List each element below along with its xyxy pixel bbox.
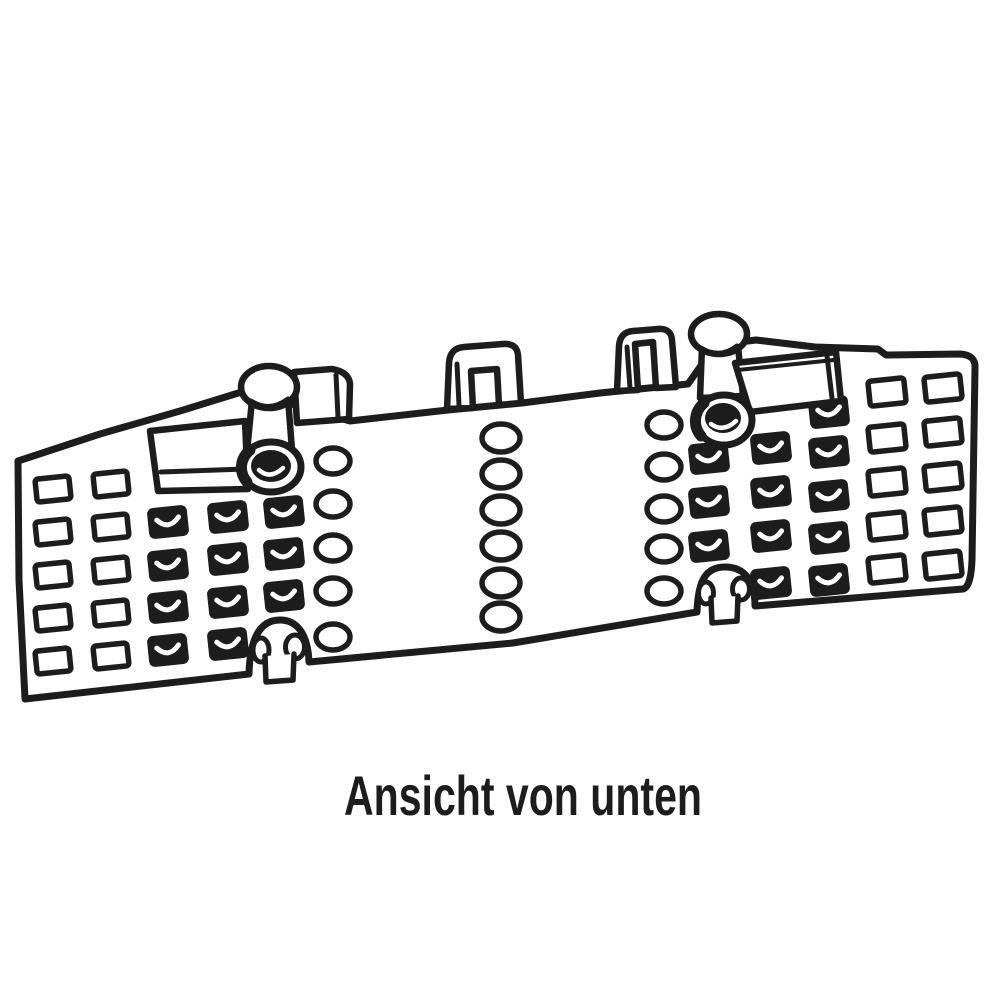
open-rect-hole bbox=[924, 507, 962, 536]
open-rect-hole bbox=[868, 555, 906, 584]
open-rect-hole bbox=[924, 463, 962, 492]
oval-hole bbox=[482, 496, 520, 524]
latch-slot-hole bbox=[752, 433, 791, 464]
middle-u-tab bbox=[447, 344, 521, 409]
oval-hole bbox=[316, 448, 350, 474]
tab-face bbox=[294, 369, 350, 423]
oval-hole bbox=[482, 532, 520, 560]
illustration-page: Ansicht von unten bbox=[0, 0, 1000, 1000]
oval-hole bbox=[316, 535, 350, 561]
bar-face bbox=[150, 421, 248, 491]
open-rect-hole bbox=[35, 562, 71, 588]
latch-slot-hole bbox=[209, 544, 248, 575]
tab-fold-line bbox=[627, 347, 630, 388]
latch-slot-hole bbox=[265, 497, 304, 528]
base-hole bbox=[251, 450, 291, 482]
latch-slot-hole bbox=[810, 437, 849, 468]
latch-slot-hole bbox=[149, 550, 188, 581]
open-rect-hole bbox=[93, 557, 129, 583]
left-fin-tab bbox=[294, 369, 350, 423]
keyhole-notch bbox=[711, 596, 738, 623]
keyhole-notch bbox=[265, 654, 294, 682]
open-rect-hole bbox=[35, 476, 71, 502]
oval-hole bbox=[316, 491, 350, 517]
latch-slot-hole bbox=[265, 539, 304, 570]
open-rect-hole bbox=[35, 519, 71, 545]
latch-slot-hole bbox=[810, 523, 849, 554]
latch-slot-hole bbox=[752, 521, 791, 552]
open-rect-hole bbox=[868, 424, 906, 453]
latch-slot-hole bbox=[149, 635, 188, 666]
latch-slot-hole bbox=[690, 487, 729, 518]
latch-slot-hole bbox=[810, 565, 849, 596]
latch-slot-hole bbox=[265, 581, 304, 612]
right-u-tab bbox=[617, 329, 676, 391]
open-rect-hole bbox=[35, 605, 71, 631]
left-knob-base bbox=[241, 442, 301, 492]
latch-slot-hole bbox=[810, 481, 849, 512]
left-latch-bar bbox=[150, 421, 248, 491]
oval-hole bbox=[316, 578, 350, 604]
open-rect-hole bbox=[93, 471, 129, 497]
oval-hole bbox=[647, 496, 681, 522]
right-latch-bar bbox=[735, 352, 841, 412]
open-rect-hole bbox=[868, 378, 906, 407]
open-rect-hole bbox=[35, 648, 71, 674]
right-keyhole bbox=[699, 578, 750, 623]
tab-fold-line bbox=[336, 375, 338, 417]
oval-hole bbox=[647, 578, 681, 604]
latch-slot-hole bbox=[149, 592, 188, 623]
latch-slot-hole bbox=[752, 568, 791, 599]
open-rect-hole bbox=[924, 374, 962, 403]
tab-fold-line bbox=[457, 364, 459, 405]
caption: Ansicht von unten bbox=[344, 764, 702, 827]
open-rect-hole bbox=[93, 643, 129, 669]
latch-slot-hole bbox=[209, 629, 248, 660]
open-rect-hole bbox=[93, 600, 129, 626]
oval-hole bbox=[647, 412, 681, 438]
oval-hole bbox=[482, 569, 520, 597]
oval-hole bbox=[316, 624, 350, 650]
latch-slot-hole bbox=[209, 587, 248, 618]
latch-slot-hole bbox=[752, 477, 791, 508]
open-rect-hole bbox=[868, 512, 906, 541]
latch-slot-hole bbox=[149, 507, 188, 538]
left-keyhole bbox=[253, 635, 305, 682]
latch-slot-hole bbox=[690, 531, 729, 562]
open-rect-hole bbox=[924, 551, 962, 580]
oval-hole bbox=[647, 536, 681, 562]
open-rect-hole bbox=[93, 514, 129, 540]
open-rect-hole bbox=[924, 418, 962, 447]
open-rect-hole bbox=[868, 468, 906, 497]
oval-hole bbox=[482, 460, 520, 488]
right-knob-base bbox=[695, 395, 752, 445]
technical-diagram: Ansicht von unten bbox=[0, 0, 1000, 1000]
latch-slot-hole bbox=[209, 502, 248, 533]
bar-fold-line bbox=[161, 469, 245, 472]
oval-hole bbox=[647, 454, 681, 480]
oval-hole bbox=[482, 603, 520, 631]
oval-hole bbox=[482, 424, 520, 452]
